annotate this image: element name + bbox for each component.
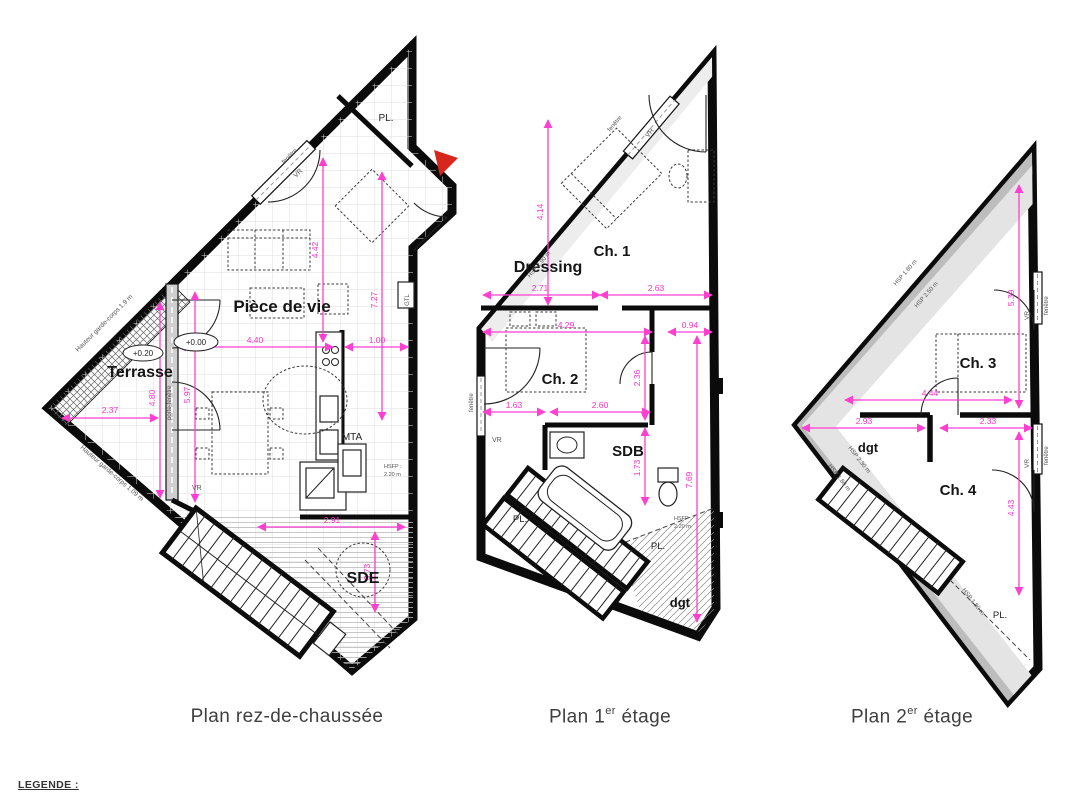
room-ch2-label: Ch. 2 <box>542 371 579 388</box>
room-sdb-label: SDB <box>612 443 644 460</box>
dim-ch1-h: 4.14 <box>535 203 545 220</box>
dim-ch3-w: 4.44 <box>922 388 939 398</box>
hsfp-label-1: HSFP : <box>384 464 402 470</box>
dim-ch1-w: 2.63 <box>648 283 665 293</box>
dim-ch2-h: 2.36 <box>632 369 642 386</box>
plan-second-floor: 5.39 4.44 2.93 2.33 4.43 Ch. 3 Ch. 4 dgt… <box>785 140 1070 715</box>
dgt-second-label: dgt <box>858 440 879 455</box>
room-dressing-label: Dressing <box>514 259 582 276</box>
dim-ch4-w: 2.33 <box>980 416 997 426</box>
dim-sdb-left: 1.63 <box>506 400 523 410</box>
vr-left-first: VR <box>492 437 502 444</box>
caption-first-sup: er <box>605 705 616 717</box>
level-floor-text: +0.00 <box>186 338 207 347</box>
window-top-first: fenêtre <box>607 115 624 134</box>
mta-label: MTA <box>342 432 363 443</box>
dim-niche-w: 0.94 <box>682 320 699 330</box>
dim-dressing-w: 2.71 <box>532 283 549 293</box>
window-second-2: fenêtre <box>1044 446 1050 465</box>
caption-second-post: étage <box>918 706 973 727</box>
room-ch4-label: Ch. 4 <box>940 482 977 499</box>
pl-left-label: PL. <box>513 514 527 525</box>
dim-ch4-h: 4.43 <box>1006 499 1016 516</box>
room-sde-label: SDE <box>347 570 380 587</box>
first-wall-tab-2 <box>714 512 723 528</box>
hsfp-first-2: 2.20 m <box>674 524 691 530</box>
rdc-level-floor: +0.00 <box>174 333 218 351</box>
room-living-label: Pièce de vie <box>233 297 330 316</box>
vr-second-2: VR <box>1024 459 1031 468</box>
caption-first-post: étage <box>616 706 671 727</box>
dim-sdb-w: 2.60 <box>592 400 609 410</box>
window-second-1: fenêtre <box>1044 296 1050 315</box>
room-ch1-label: Ch. 1 <box>594 243 631 260</box>
dim-living-h: 4.42 <box>310 241 320 258</box>
hsfp-first-1: HSFP : <box>674 516 692 522</box>
second-window-2 <box>1033 424 1042 474</box>
window-left-first: fenêtre <box>469 393 475 412</box>
dim-right-h: 7.27 <box>369 291 379 308</box>
room-closet-label: PL. <box>378 113 393 124</box>
caption-plan-rdc: Plan rez-de-chaussée <box>127 706 447 728</box>
legend-title: LEGENDE : <box>18 779 79 791</box>
caption-rdc-text: Plan rez-de-chaussée <box>191 706 384 727</box>
caption-second-sup: er <box>907 705 918 717</box>
dim-dgt-w: 2.93 <box>856 416 873 426</box>
rdc-kitchen-fridge <box>320 430 338 454</box>
room-ch3-label: Ch. 3 <box>960 355 997 372</box>
first-wall-tab-1 <box>714 378 723 394</box>
rdc-level-terrace: +0.20 <box>123 345 163 361</box>
pl-right-label: PL. <box>651 541 665 552</box>
dim-kitchen-w: 1.00 <box>369 335 386 345</box>
caption-plan-second: Plan 2er étage <box>752 706 1070 728</box>
first-washbasin <box>550 432 584 458</box>
caption-first-pre: Plan 1 <box>549 706 605 727</box>
gtl-label: GTL <box>405 294 411 306</box>
caption-second-pre: Plan 2 <box>851 706 907 727</box>
dim-terrace-h: 4.80 <box>147 389 157 406</box>
pl-second-label: PL. <box>993 610 1007 621</box>
level-terrace-text: +0.20 <box>133 349 154 358</box>
caption-plan-first: Plan 1er étage <box>450 706 770 728</box>
dgt-first-label: dgt <box>670 595 691 610</box>
dim-first-right-h: 7.69 <box>684 471 694 488</box>
plan-rdc: 4.40 1.00 4.42 7.27 5.97 4.80 2.37 2.91 … <box>25 35 475 685</box>
floor-plans-sheet: 4.40 1.00 4.42 7.27 5.97 4.80 2.37 2.91 … <box>0 0 1070 800</box>
dim-ch2-w: 4.29 <box>558 320 575 330</box>
dim-sdb-h: 1.73 <box>632 459 642 476</box>
first-left-window <box>477 376 485 436</box>
dim-sde-w: 2.91 <box>324 515 341 525</box>
room-terrace-label: Terrasse <box>107 364 173 381</box>
plan-first-floor: 4.14 2.71 2.63 4.29 0.94 2.36 1.63 2.60 … <box>465 45 760 655</box>
dim-terrace-w: 2.37 <box>102 405 119 415</box>
vr-second-1: VR <box>1024 311 1031 320</box>
door-window-label: porte-fenêtre <box>167 385 173 420</box>
dim-living-w: 4.40 <box>247 335 264 345</box>
rdc-mta-inner <box>343 450 361 476</box>
rdc-kitchen-sink <box>320 396 338 422</box>
dim-hall-h: 5.97 <box>182 386 192 403</box>
hsfp-label-2: 2.20 m <box>384 472 401 478</box>
dim-ch3-h: 5.39 <box>1006 289 1016 306</box>
vr-terrace-label: VR <box>192 485 202 492</box>
